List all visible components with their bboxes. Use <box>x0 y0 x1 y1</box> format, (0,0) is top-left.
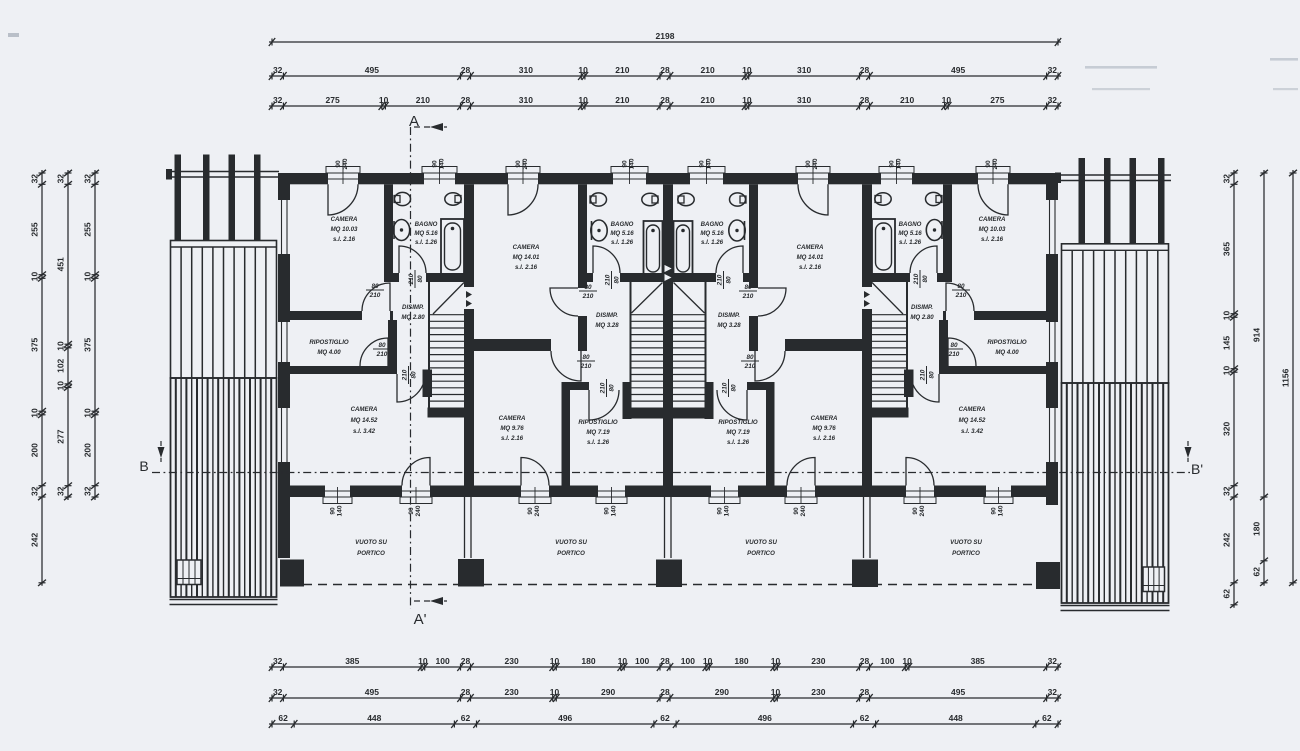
svg-text:28: 28 <box>860 65 870 75</box>
svg-text:RIPOSTIGLIO: RIPOSTIGLIO <box>987 339 1027 346</box>
svg-text:DISIMP.: DISIMP. <box>911 304 933 311</box>
svg-text:BAGNO: BAGNO <box>611 221 634 228</box>
svg-text:210: 210 <box>600 382 607 394</box>
svg-text:CAMERA: CAMERA <box>979 216 1006 223</box>
svg-text:200: 200 <box>30 443 40 457</box>
svg-text:62: 62 <box>278 713 288 723</box>
svg-text:210: 210 <box>615 95 629 105</box>
svg-text:80: 80 <box>929 371 936 379</box>
svg-text:MQ 2.80: MQ 2.80 <box>401 314 425 321</box>
svg-text:s.l. 3.42: s.l. 3.42 <box>961 428 984 435</box>
svg-text:80: 80 <box>726 276 733 284</box>
svg-text:32: 32 <box>273 65 283 75</box>
svg-text:140: 140 <box>998 505 1005 516</box>
svg-text:180: 180 <box>581 656 595 666</box>
svg-text:80: 80 <box>378 342 386 349</box>
svg-text:240: 240 <box>522 158 529 169</box>
svg-text:10: 10 <box>578 95 588 105</box>
svg-text:80: 80 <box>731 384 738 392</box>
svg-text:CAMERA: CAMERA <box>797 244 824 251</box>
svg-text:CAMERA: CAMERA <box>959 406 986 413</box>
svg-text:90: 90 <box>699 160 706 168</box>
svg-text:s.l. 1.26: s.l. 1.26 <box>701 239 724 246</box>
svg-text:310: 310 <box>519 95 533 105</box>
svg-text:290: 290 <box>601 687 615 697</box>
svg-text:80: 80 <box>922 275 929 283</box>
svg-text:210: 210 <box>416 95 430 105</box>
svg-text:365: 365 <box>1222 242 1232 256</box>
svg-text:10: 10 <box>902 656 912 666</box>
svg-text:28: 28 <box>860 95 870 105</box>
svg-text:28: 28 <box>660 95 670 105</box>
svg-text:320: 320 <box>1222 422 1232 436</box>
svg-text:1156: 1156 <box>1281 368 1291 387</box>
svg-text:80: 80 <box>744 284 752 291</box>
svg-text:90: 90 <box>527 507 534 515</box>
svg-text:210: 210 <box>955 292 967 299</box>
svg-text:210: 210 <box>701 65 715 75</box>
svg-text:210: 210 <box>900 95 914 105</box>
svg-text:10: 10 <box>56 341 66 351</box>
svg-text:32: 32 <box>83 174 93 184</box>
svg-text:MQ 2.80: MQ 2.80 <box>910 314 934 321</box>
svg-text:210: 210 <box>580 363 592 370</box>
svg-text:495: 495 <box>365 65 379 75</box>
svg-text:90: 90 <box>912 507 919 515</box>
svg-text:10: 10 <box>30 408 40 418</box>
svg-text:80: 80 <box>417 275 424 283</box>
svg-text:VUOTO SU: VUOTO SU <box>555 539 587 546</box>
svg-text:MQ 3.28: MQ 3.28 <box>595 322 619 329</box>
svg-text:140: 140 <box>706 158 713 169</box>
svg-text:100: 100 <box>681 656 695 666</box>
svg-text:62: 62 <box>660 713 670 723</box>
svg-text:140: 140 <box>337 505 344 516</box>
svg-text:CAMERA: CAMERA <box>513 244 540 251</box>
svg-text:A': A' <box>414 611 427 628</box>
svg-text:230: 230 <box>811 687 825 697</box>
svg-text:28: 28 <box>660 656 670 666</box>
svg-text:90: 90 <box>793 507 800 515</box>
svg-text:28: 28 <box>660 687 670 697</box>
svg-text:MQ 3.28: MQ 3.28 <box>717 322 741 329</box>
svg-text:240: 240 <box>992 158 999 169</box>
svg-text:914: 914 <box>1252 328 1262 342</box>
svg-text:28: 28 <box>461 65 471 75</box>
svg-text:s.l. 1.26: s.l. 1.26 <box>587 439 610 446</box>
svg-text:MQ 4.00: MQ 4.00 <box>995 349 1019 356</box>
svg-text:385: 385 <box>971 656 985 666</box>
svg-text:BAGNO: BAGNO <box>415 221 438 228</box>
svg-text:90: 90 <box>408 507 415 515</box>
svg-text:32: 32 <box>30 486 40 496</box>
svg-text:10: 10 <box>771 656 781 666</box>
svg-text:100: 100 <box>436 656 450 666</box>
svg-text:10: 10 <box>771 687 781 697</box>
svg-text:102: 102 <box>56 358 66 372</box>
svg-text:28: 28 <box>860 656 870 666</box>
svg-text:10: 10 <box>83 272 93 282</box>
svg-text:PORTICO: PORTICO <box>747 550 775 557</box>
svg-text:32: 32 <box>273 687 283 697</box>
svg-text:210: 210 <box>920 369 927 381</box>
svg-text:32: 32 <box>273 656 283 666</box>
svg-text:90: 90 <box>985 160 992 168</box>
svg-text:230: 230 <box>811 656 825 666</box>
svg-text:MQ 5.16: MQ 5.16 <box>700 230 724 237</box>
svg-text:10: 10 <box>578 65 588 75</box>
svg-text:s.l. 1.26: s.l. 1.26 <box>899 239 922 246</box>
svg-text:10: 10 <box>618 656 628 666</box>
svg-text:MQ 5.16: MQ 5.16 <box>898 230 922 237</box>
svg-text:240: 240 <box>415 505 422 516</box>
svg-text:MQ 14.52: MQ 14.52 <box>351 417 378 424</box>
svg-text:210: 210 <box>402 369 409 381</box>
svg-text:90: 90 <box>805 160 812 168</box>
svg-text:MQ 10.03: MQ 10.03 <box>979 226 1006 233</box>
svg-text:496: 496 <box>758 713 772 723</box>
svg-text:240: 240 <box>919 505 926 516</box>
svg-text:80: 80 <box>746 354 754 361</box>
svg-text:90: 90 <box>991 507 998 515</box>
svg-text:210: 210 <box>605 274 612 286</box>
svg-text:210: 210 <box>582 293 594 300</box>
svg-text:375: 375 <box>30 337 40 351</box>
svg-text:496: 496 <box>558 713 572 723</box>
svg-text:495: 495 <box>365 687 379 697</box>
svg-text:140: 140 <box>629 158 636 169</box>
svg-text:s.l. 1.26: s.l. 1.26 <box>727 439 750 446</box>
svg-text:VUOTO SU: VUOTO SU <box>950 539 982 546</box>
svg-text:2198: 2198 <box>656 31 675 41</box>
svg-text:10: 10 <box>83 408 93 418</box>
svg-text:BAGNO: BAGNO <box>701 221 724 228</box>
svg-text:240: 240 <box>800 505 807 516</box>
svg-text:DISIMP.: DISIMP. <box>718 312 740 319</box>
svg-text:80: 80 <box>371 283 379 290</box>
svg-text:CAMERA: CAMERA <box>351 406 378 413</box>
svg-text:s.l. 2.16: s.l. 2.16 <box>515 264 538 271</box>
svg-text:32: 32 <box>273 95 283 105</box>
svg-text:230: 230 <box>505 687 519 697</box>
svg-text:62: 62 <box>860 713 870 723</box>
svg-text:MQ 7.19: MQ 7.19 <box>726 429 750 436</box>
svg-text:28: 28 <box>461 95 471 105</box>
svg-text:MQ 10.03: MQ 10.03 <box>331 226 358 233</box>
svg-text:10: 10 <box>742 65 752 75</box>
svg-text:MQ 5.16: MQ 5.16 <box>610 230 634 237</box>
svg-text:CAMERA: CAMERA <box>499 415 526 422</box>
svg-text:230: 230 <box>505 656 519 666</box>
svg-text:275: 275 <box>326 95 340 105</box>
svg-text:210: 210 <box>369 292 381 299</box>
svg-text:s.l. 2.16: s.l. 2.16 <box>333 236 356 243</box>
svg-text:180: 180 <box>1252 522 1262 536</box>
svg-text:DISIMP.: DISIMP. <box>596 312 618 319</box>
svg-text:80: 80 <box>957 283 965 290</box>
svg-text:242: 242 <box>30 533 40 547</box>
svg-text:80: 80 <box>609 384 616 392</box>
svg-text:310: 310 <box>797 65 811 75</box>
svg-text:180: 180 <box>734 656 748 666</box>
svg-text:210: 210 <box>744 363 756 370</box>
svg-text:240: 240 <box>534 505 541 516</box>
svg-text:BAGNO: BAGNO <box>899 221 922 228</box>
svg-text:90: 90 <box>335 160 342 168</box>
svg-text:448: 448 <box>367 713 381 723</box>
svg-text:MQ 4.00: MQ 4.00 <box>317 349 341 356</box>
svg-text:10: 10 <box>1222 366 1232 376</box>
svg-text:B: B <box>139 458 148 474</box>
svg-text:32: 32 <box>1222 174 1232 184</box>
svg-text:375: 375 <box>83 337 93 351</box>
svg-text:80: 80 <box>614 276 621 284</box>
svg-text:210: 210 <box>717 274 724 286</box>
svg-text:PORTICO: PORTICO <box>952 550 980 557</box>
svg-text:448: 448 <box>949 713 963 723</box>
svg-text:VUOTO SU: VUOTO SU <box>355 539 387 546</box>
svg-text:80: 80 <box>582 354 590 361</box>
svg-text:28: 28 <box>660 65 670 75</box>
svg-text:277: 277 <box>56 429 66 443</box>
svg-text:62: 62 <box>1042 713 1052 723</box>
svg-text:VUOTO SU: VUOTO SU <box>745 539 777 546</box>
svg-text:10: 10 <box>1222 311 1232 321</box>
svg-text:100: 100 <box>635 656 649 666</box>
svg-text:140: 140 <box>724 505 731 516</box>
svg-text:210: 210 <box>376 351 388 358</box>
svg-text:MQ 9.76: MQ 9.76 <box>500 425 524 432</box>
svg-text:210: 210 <box>408 273 415 285</box>
svg-text:210: 210 <box>615 65 629 75</box>
svg-text:80: 80 <box>411 371 418 379</box>
svg-text:28: 28 <box>461 687 471 697</box>
svg-text:s.l. 2.16: s.l. 2.16 <box>813 435 836 442</box>
svg-text:90: 90 <box>604 507 611 515</box>
svg-text:s.l. 1.26: s.l. 1.26 <box>611 239 634 246</box>
svg-text:RIPOSTIGLIO: RIPOSTIGLIO <box>578 419 618 426</box>
svg-text:MQ 14.52: MQ 14.52 <box>959 417 986 424</box>
svg-text:210: 210 <box>701 95 715 105</box>
svg-text:310: 310 <box>797 95 811 105</box>
svg-text:10: 10 <box>550 687 560 697</box>
svg-text:495: 495 <box>951 65 965 75</box>
svg-text:210: 210 <box>722 382 729 394</box>
svg-text:MQ 5.16: MQ 5.16 <box>414 230 438 237</box>
svg-text:275: 275 <box>990 95 1004 105</box>
svg-text:s.l. 3.42: s.l. 3.42 <box>353 428 376 435</box>
svg-text:CAMERA: CAMERA <box>331 216 358 223</box>
svg-text:62: 62 <box>1252 567 1262 577</box>
svg-text:240: 240 <box>342 158 349 169</box>
svg-text:90: 90 <box>432 160 439 168</box>
svg-text:100: 100 <box>880 656 894 666</box>
svg-text:210: 210 <box>913 273 920 285</box>
svg-text:RIPOSTIGLIO: RIPOSTIGLIO <box>718 419 758 426</box>
svg-text:32: 32 <box>1048 65 1058 75</box>
svg-text:385: 385 <box>345 656 359 666</box>
svg-text:32: 32 <box>1048 656 1058 666</box>
svg-text:255: 255 <box>30 222 40 236</box>
svg-text:200: 200 <box>83 443 93 457</box>
svg-text:32: 32 <box>1222 486 1232 496</box>
svg-text:90: 90 <box>889 160 896 168</box>
svg-text:PORTICO: PORTICO <box>557 550 585 557</box>
svg-text:140: 140 <box>439 158 446 169</box>
svg-text:451: 451 <box>56 257 66 271</box>
svg-text:s.l. 2.16: s.l. 2.16 <box>981 236 1004 243</box>
svg-text:210: 210 <box>742 293 754 300</box>
svg-text:495: 495 <box>951 687 965 697</box>
svg-text:10: 10 <box>418 656 428 666</box>
svg-text:32: 32 <box>1048 687 1058 697</box>
svg-text:10: 10 <box>56 381 66 391</box>
svg-text:28: 28 <box>860 687 870 697</box>
svg-text:s.l. 2.16: s.l. 2.16 <box>501 435 524 442</box>
svg-text:32: 32 <box>83 486 93 496</box>
svg-text:32: 32 <box>56 486 66 496</box>
svg-text:90: 90 <box>717 507 724 515</box>
svg-text:CAMERA: CAMERA <box>811 415 838 422</box>
svg-text:10: 10 <box>703 656 713 666</box>
svg-text:310: 310 <box>519 65 533 75</box>
svg-text:90: 90 <box>622 160 629 168</box>
svg-text:62: 62 <box>1222 589 1232 599</box>
svg-text:10: 10 <box>30 272 40 282</box>
svg-text:s.l. 1.26: s.l. 1.26 <box>415 239 438 246</box>
svg-text:32: 32 <box>1048 95 1058 105</box>
svg-text:80: 80 <box>950 342 958 349</box>
svg-text:62: 62 <box>461 713 471 723</box>
svg-text:10: 10 <box>379 95 389 105</box>
svg-text:240: 240 <box>812 158 819 169</box>
svg-text:MQ 14.01: MQ 14.01 <box>513 254 540 261</box>
svg-text:10: 10 <box>550 656 560 666</box>
svg-text:DISIMP.: DISIMP. <box>402 304 424 311</box>
svg-text:140: 140 <box>611 505 618 516</box>
svg-text:242: 242 <box>1222 533 1232 547</box>
svg-text:28: 28 <box>461 656 471 666</box>
svg-text:PORTICO: PORTICO <box>357 550 385 557</box>
svg-text:10: 10 <box>942 95 952 105</box>
svg-text:32: 32 <box>56 174 66 184</box>
svg-text:145: 145 <box>1222 336 1232 350</box>
svg-text:90: 90 <box>330 507 337 515</box>
svg-text:RIPOSTIGLIO: RIPOSTIGLIO <box>309 339 349 346</box>
svg-text:MQ 9.76: MQ 9.76 <box>812 425 836 432</box>
svg-text:s.l. 2.16: s.l. 2.16 <box>799 264 822 271</box>
svg-text:290: 290 <box>715 687 729 697</box>
svg-text:MQ 7.19: MQ 7.19 <box>586 429 610 436</box>
svg-text:MQ 14.01: MQ 14.01 <box>797 254 824 261</box>
svg-text:140: 140 <box>896 158 903 169</box>
svg-text:90: 90 <box>515 160 522 168</box>
svg-text:32: 32 <box>30 174 40 184</box>
svg-text:B': B' <box>1191 461 1203 477</box>
svg-text:10: 10 <box>742 95 752 105</box>
svg-text:210: 210 <box>948 351 960 358</box>
svg-text:255: 255 <box>83 222 93 236</box>
svg-text:80: 80 <box>584 284 592 291</box>
